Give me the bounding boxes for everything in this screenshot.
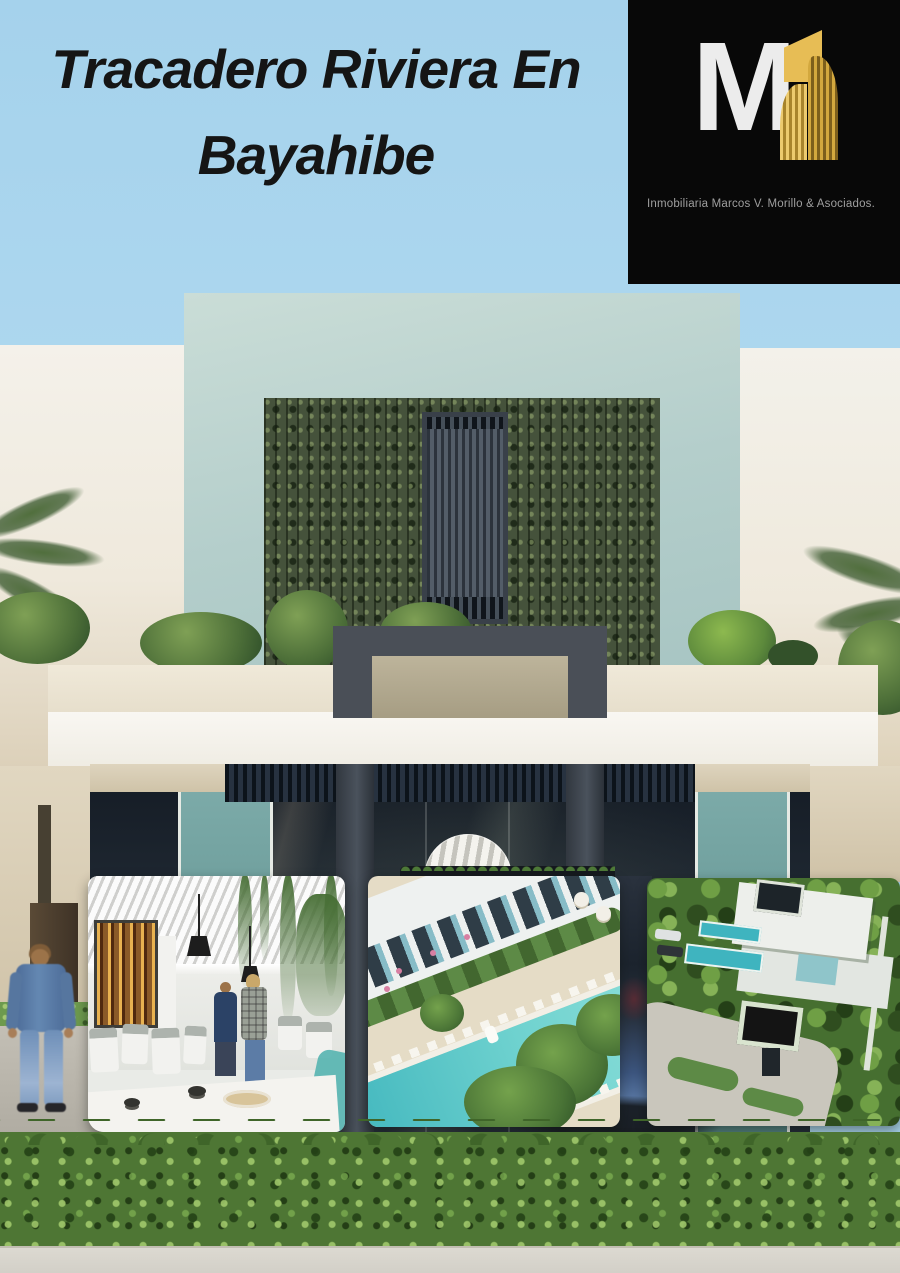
fascia-right bbox=[695, 764, 810, 792]
pink-flowers bbox=[430, 950, 436, 956]
umbrella bbox=[574, 892, 589, 907]
umbrella bbox=[596, 906, 611, 921]
person-denim-jacket bbox=[16, 964, 66, 1032]
stone-wall-right bbox=[810, 766, 900, 882]
photo-inset-villa-aerial bbox=[647, 878, 900, 1126]
hanging-vine bbox=[280, 876, 296, 1024]
flyer-canvas: Tracadero Riviera En Bayahibe M Inmobili… bbox=[0, 0, 900, 1273]
hanging-vine bbox=[260, 876, 269, 960]
dining-chair bbox=[89, 1027, 119, 1072]
canopy-front-face bbox=[48, 712, 878, 770]
logo-building-icon: M bbox=[692, 30, 852, 162]
pink-flowers bbox=[464, 934, 470, 940]
title-line-2: Bayahibe bbox=[0, 112, 632, 198]
villa-entry-pedestal bbox=[762, 1048, 780, 1076]
person-leg bbox=[44, 1030, 63, 1106]
canopy-fern bbox=[688, 610, 776, 672]
louvered-window bbox=[422, 412, 508, 624]
logo-company-name: Inmobiliaria Marcos V. Morillo & Asociad… bbox=[628, 198, 894, 210]
diner-woman-plaid-shirt bbox=[241, 987, 267, 1040]
diner-man-shirt bbox=[214, 992, 237, 1042]
fascia-left bbox=[90, 764, 225, 792]
entry-portal-frame bbox=[333, 626, 607, 718]
person-shoe bbox=[45, 1103, 66, 1112]
person-shoe bbox=[17, 1103, 38, 1112]
coffee-cup bbox=[188, 1086, 206, 1096]
villa-black-canopy bbox=[737, 1000, 804, 1051]
pink-flowers bbox=[396, 968, 402, 974]
lamp-cord bbox=[198, 894, 200, 938]
bread-plate bbox=[223, 1090, 271, 1108]
diner-man-legs bbox=[215, 1042, 236, 1076]
person-hand bbox=[8, 1028, 17, 1038]
dining-chair bbox=[183, 1025, 207, 1064]
palm-cluster bbox=[420, 994, 464, 1032]
foreground-hedge bbox=[0, 1132, 900, 1250]
pink-flowers bbox=[384, 986, 390, 992]
photo-inset-restaurant bbox=[88, 876, 345, 1132]
coffee-cup bbox=[124, 1098, 140, 1107]
person-leg bbox=[20, 1030, 39, 1106]
logo-tower-tall bbox=[808, 56, 838, 160]
person-hand bbox=[64, 1028, 73, 1038]
page-title: Tracadero Riviera En Bayahibe bbox=[0, 26, 632, 198]
logo-panel: M Inmobiliaria Marcos V. Morillo & Asoci… bbox=[628, 0, 900, 284]
entry-portal-stone bbox=[372, 656, 568, 718]
diner-woman-hair bbox=[246, 974, 260, 988]
parked-car bbox=[656, 944, 683, 957]
dining-chair bbox=[278, 1016, 302, 1050]
villa-glass-penthouse bbox=[753, 879, 805, 917]
dining-chair bbox=[151, 1028, 181, 1075]
villa-teal-entrance bbox=[796, 954, 839, 986]
lamp-cord bbox=[249, 926, 251, 968]
parked-car bbox=[654, 928, 681, 941]
person-figure bbox=[8, 944, 74, 1116]
title-line-1: Tracadero Riviera En bbox=[0, 26, 632, 112]
foreground-walkway bbox=[0, 1246, 900, 1273]
photo-inset-pool-aerial bbox=[368, 876, 620, 1127]
restaurant-bar-shelves bbox=[94, 920, 158, 1028]
slatted-soffit bbox=[225, 764, 695, 802]
green-wall-glimpse bbox=[296, 894, 345, 1016]
dining-chair bbox=[121, 1024, 148, 1065]
